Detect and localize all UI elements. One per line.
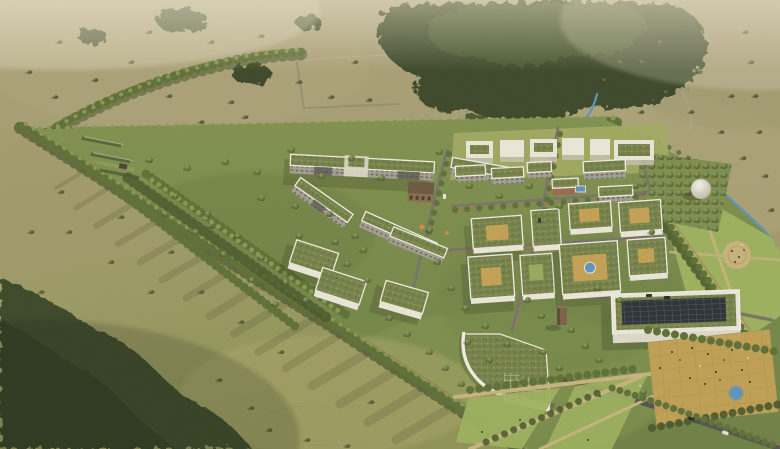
pavilion (590, 139, 610, 160)
courtyard-building (520, 253, 555, 300)
pavilion (562, 138, 584, 160)
brick-building (552, 178, 579, 195)
pavilion (500, 140, 524, 162)
apartment-slab (455, 165, 486, 183)
playground (420, 225, 425, 230)
apartment-slab (598, 185, 633, 203)
apartment-slab (583, 160, 626, 180)
pavilion (466, 141, 493, 163)
apartment-slab (527, 161, 552, 178)
courtyard-building (568, 201, 612, 235)
courtyard-building (531, 209, 562, 252)
aerial-render (0, 0, 780, 449)
apartment-slab (491, 167, 524, 185)
playground (445, 231, 449, 235)
render-canvas (0, 0, 780, 449)
car (646, 294, 652, 297)
courtyard-building (627, 237, 668, 281)
courtyard-building (460, 254, 516, 314)
car (443, 194, 446, 199)
courtyard-building (618, 200, 662, 238)
swimming-pool (575, 186, 586, 193)
timber-building (407, 181, 434, 202)
car (664, 296, 670, 299)
car (538, 218, 541, 223)
pavilion (530, 139, 557, 162)
